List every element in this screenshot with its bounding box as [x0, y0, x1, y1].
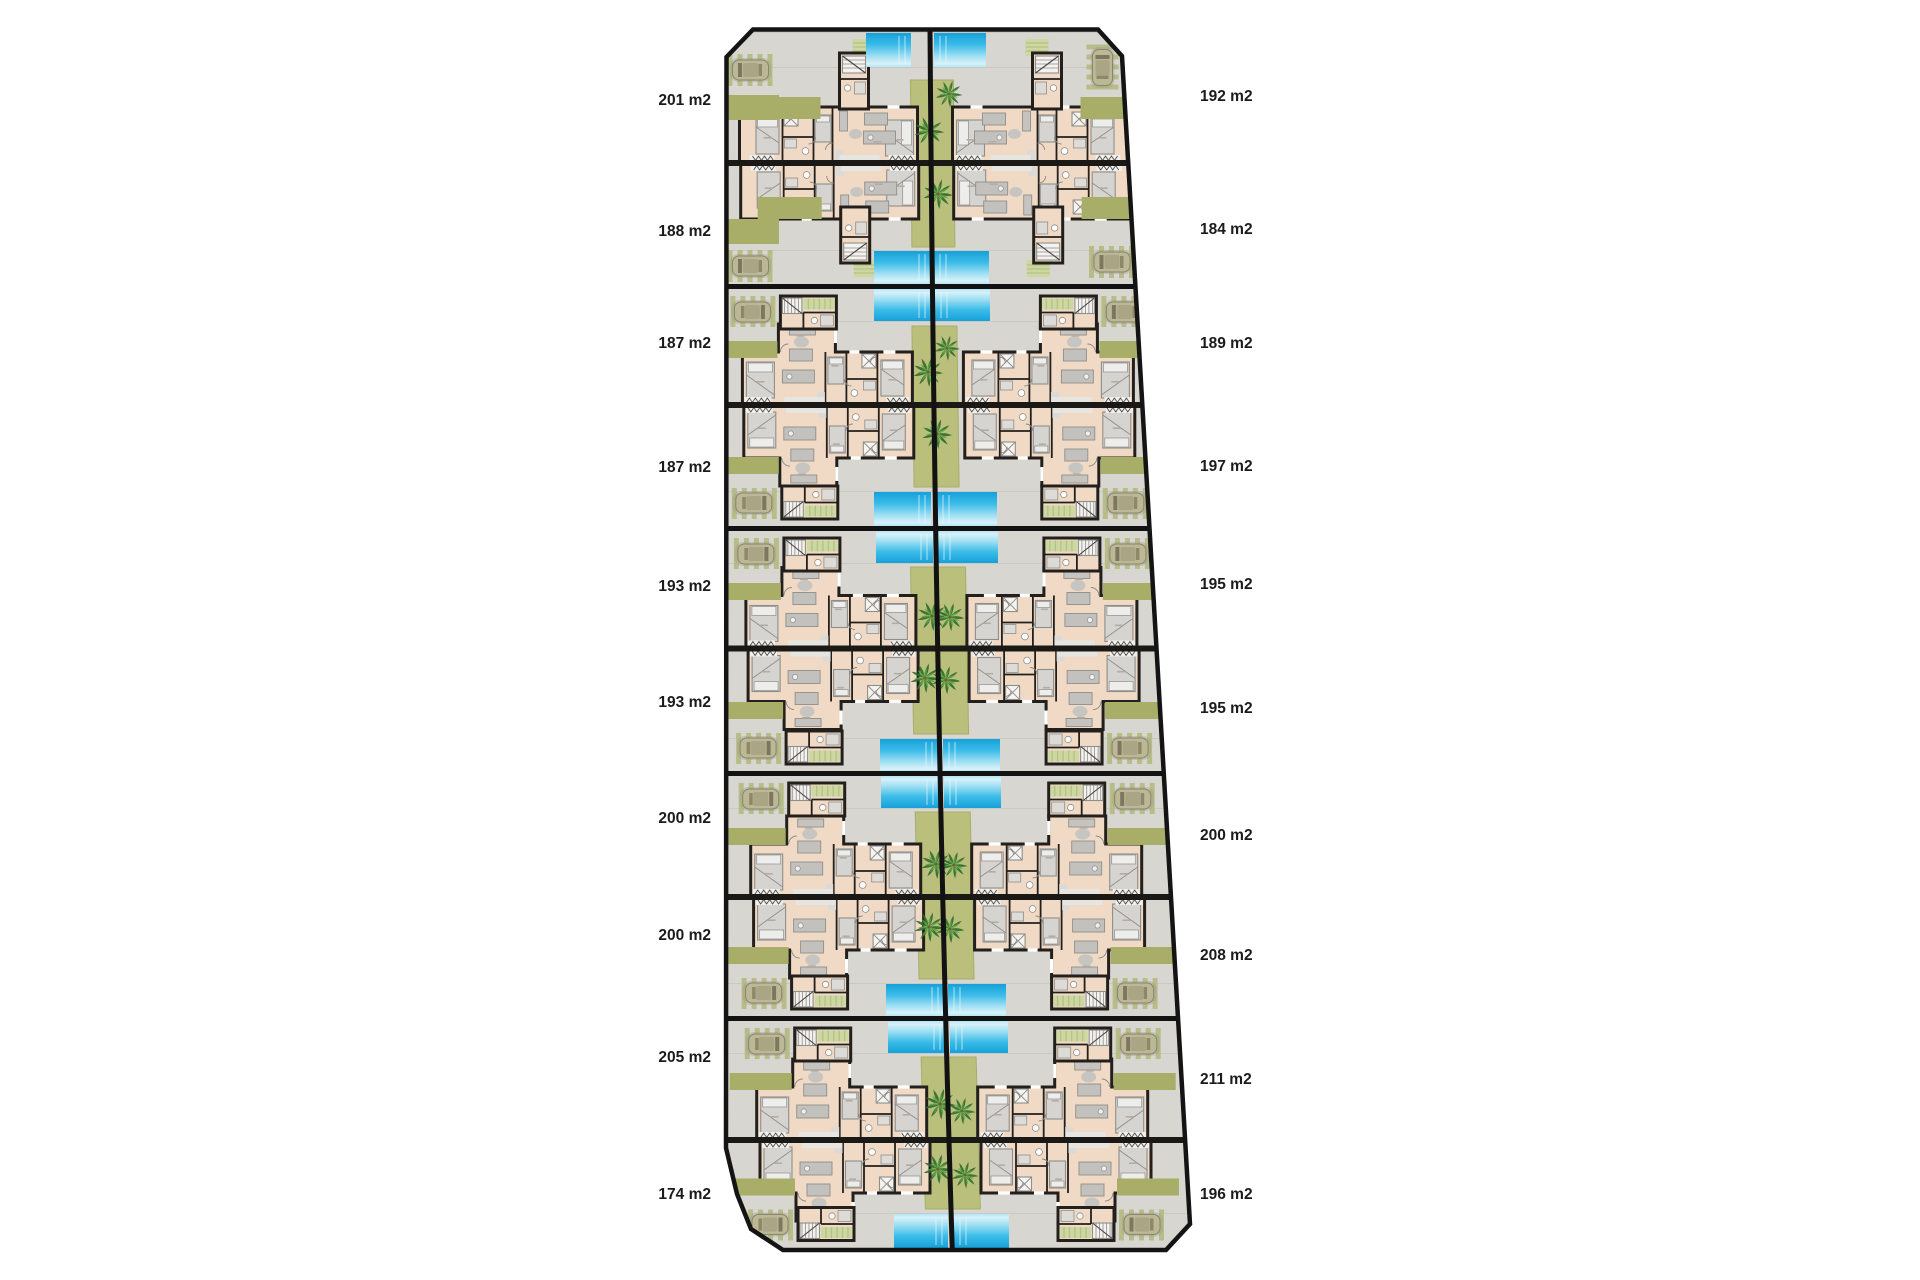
svg-text:195 m2: 195 m2: [1200, 576, 1253, 593]
svg-text:197 m2: 197 m2: [1200, 458, 1253, 475]
svg-text:200 m2: 200 m2: [658, 810, 711, 827]
svg-text:200 m2: 200 m2: [658, 927, 711, 944]
svg-text:208 m2: 208 m2: [1200, 947, 1253, 964]
svg-text:196 m2: 196 m2: [1200, 1186, 1253, 1203]
svg-text:211 m2: 211 m2: [1200, 1071, 1252, 1088]
svg-text:188 m2: 188 m2: [658, 223, 711, 240]
svg-text:193 m2: 193 m2: [658, 694, 711, 711]
svg-text:193 m2: 193 m2: [658, 578, 711, 595]
svg-text:200 m2: 200 m2: [1200, 827, 1253, 844]
svg-text:184 m2: 184 m2: [1200, 221, 1253, 238]
svg-text:187 m2: 187 m2: [658, 459, 711, 476]
svg-text:174 m2: 174 m2: [658, 1186, 711, 1203]
svg-text:195 m2: 195 m2: [1200, 700, 1253, 717]
svg-text:205 m2: 205 m2: [658, 1049, 711, 1066]
svg-text:192 m2: 192 m2: [1200, 88, 1253, 105]
svg-text:187 m2: 187 m2: [658, 335, 711, 352]
svg-text:189 m2: 189 m2: [1200, 335, 1253, 352]
svg-text:201 m2: 201 m2: [658, 92, 711, 109]
